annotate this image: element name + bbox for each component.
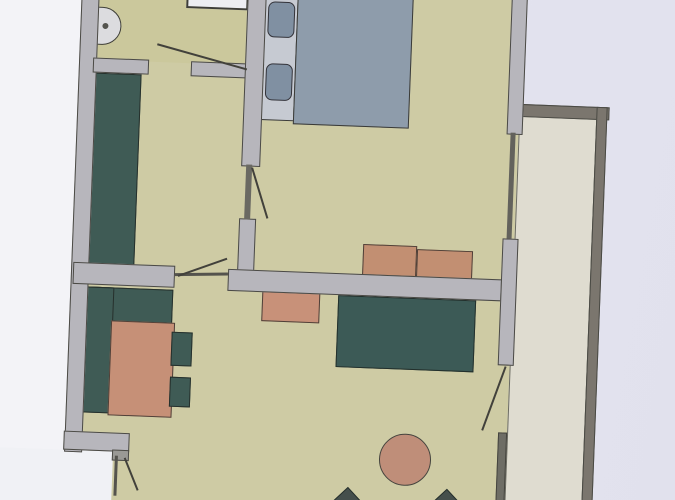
- bedroom-dresser-left: [362, 244, 417, 277]
- divider-wall-left: [73, 262, 176, 288]
- dining-chair-1: [170, 332, 192, 367]
- floor-plan: [0, 0, 675, 500]
- floor-plan-photo: [0, 0, 675, 500]
- dining-chair-2: [169, 377, 191, 408]
- bed-pillow-1: [267, 1, 295, 38]
- bathroom-bottom-wall-left: [93, 57, 150, 74]
- bed: [293, 0, 414, 129]
- dining-table: [107, 320, 175, 417]
- sofa: [336, 295, 477, 372]
- middle-wall-lower: [237, 218, 256, 276]
- sofa-side-table: [261, 291, 320, 323]
- bed-pillow-2: [265, 63, 293, 101]
